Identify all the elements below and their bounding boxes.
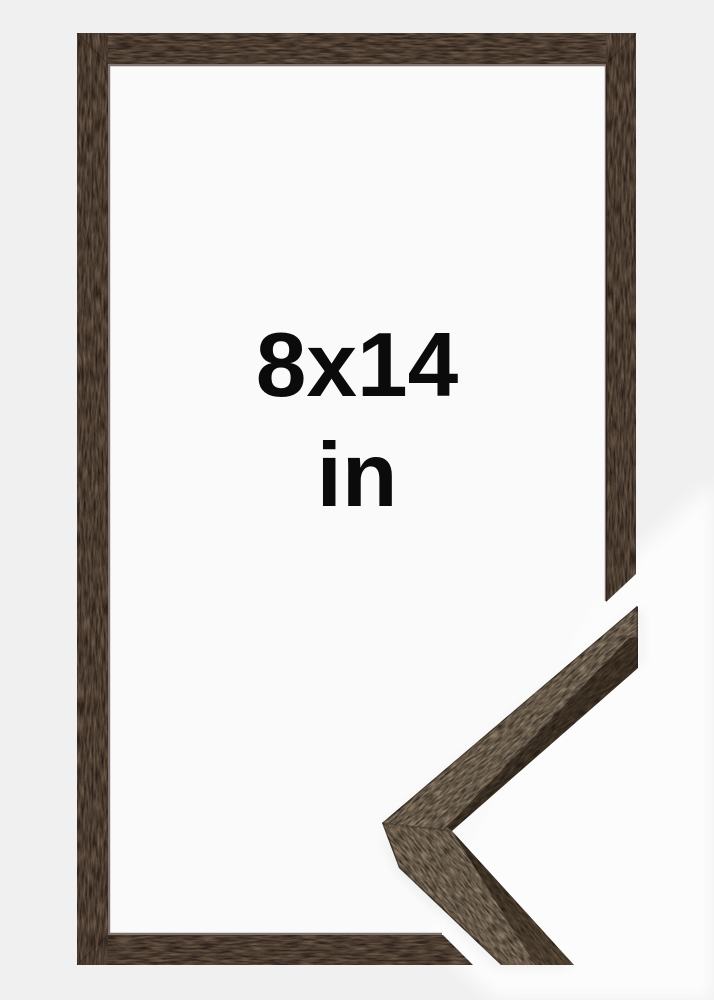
svg-text:in: in xyxy=(317,425,398,526)
svg-text:8x14: 8x14 xyxy=(256,315,459,416)
